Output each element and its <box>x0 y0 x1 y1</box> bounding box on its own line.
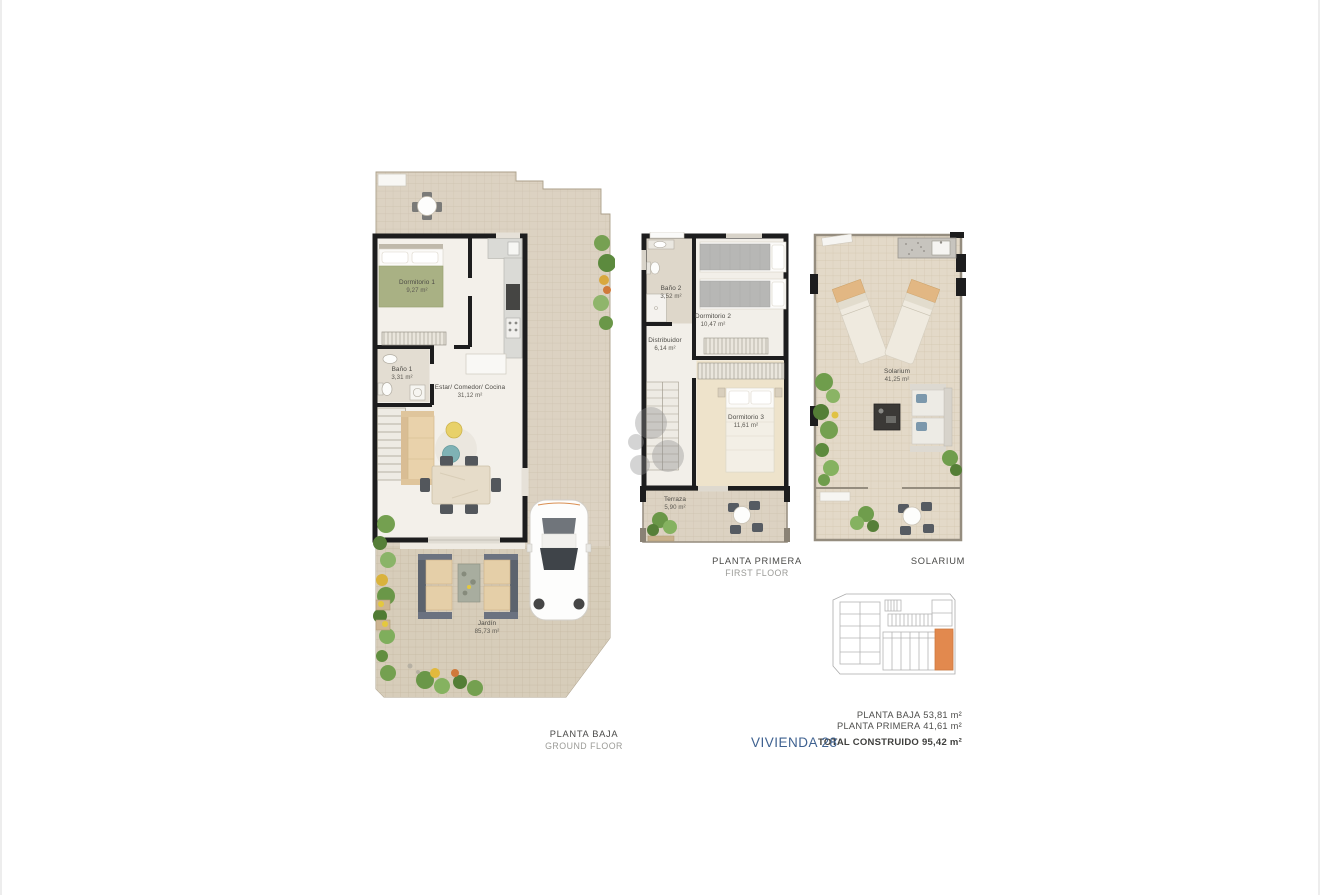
sofa <box>401 411 434 485</box>
summary-planta-primera: PLANTA PRIMERA 41,61 m² <box>837 721 962 731</box>
caption-first-floor: PLANTA PRIMERA FIRST FLOOR <box>677 556 837 578</box>
washer <box>410 385 425 400</box>
highlighted-plot <box>935 629 953 670</box>
caption-solarium: SOLARIUM <box>858 556 1018 566</box>
wardrobe <box>382 332 446 345</box>
caption-ground-floor: PLANTA BAJA GROUND FLOOR <box>504 729 664 751</box>
floorplan-page: Dormitorio 1 9,27 m² Baño 1 3,31 m² Esta… <box>0 0 1320 895</box>
summary-planta-baja: PLANTA BAJA 53,81 m² <box>857 710 962 720</box>
house-interior <box>375 233 529 544</box>
ground-floor-plan <box>370 168 615 700</box>
left-edge-line <box>0 0 2 895</box>
toilet <box>378 383 392 396</box>
first-floor-plan <box>640 232 790 545</box>
stairs <box>647 382 679 470</box>
plant <box>942 450 958 466</box>
site-keyplan <box>828 586 962 690</box>
summary-total: TOTAL CONSTRUIDO 95,42 m² <box>818 737 962 748</box>
pouf-yellow <box>446 422 462 438</box>
terrace-planter <box>378 174 406 186</box>
double-bed <box>379 244 443 307</box>
car <box>527 500 591 620</box>
kitchenette-counter <box>898 238 956 258</box>
outdoor-sofa <box>910 384 952 452</box>
unit-title: VIVIENDA 28 <box>751 735 838 750</box>
double-bed <box>718 388 782 472</box>
plant <box>950 464 962 476</box>
solarium-plan <box>810 230 966 545</box>
sink <box>383 355 397 364</box>
wardrobe <box>704 338 768 354</box>
planter <box>820 492 850 501</box>
wardrobe <box>698 363 784 379</box>
coffee-table <box>874 404 900 430</box>
